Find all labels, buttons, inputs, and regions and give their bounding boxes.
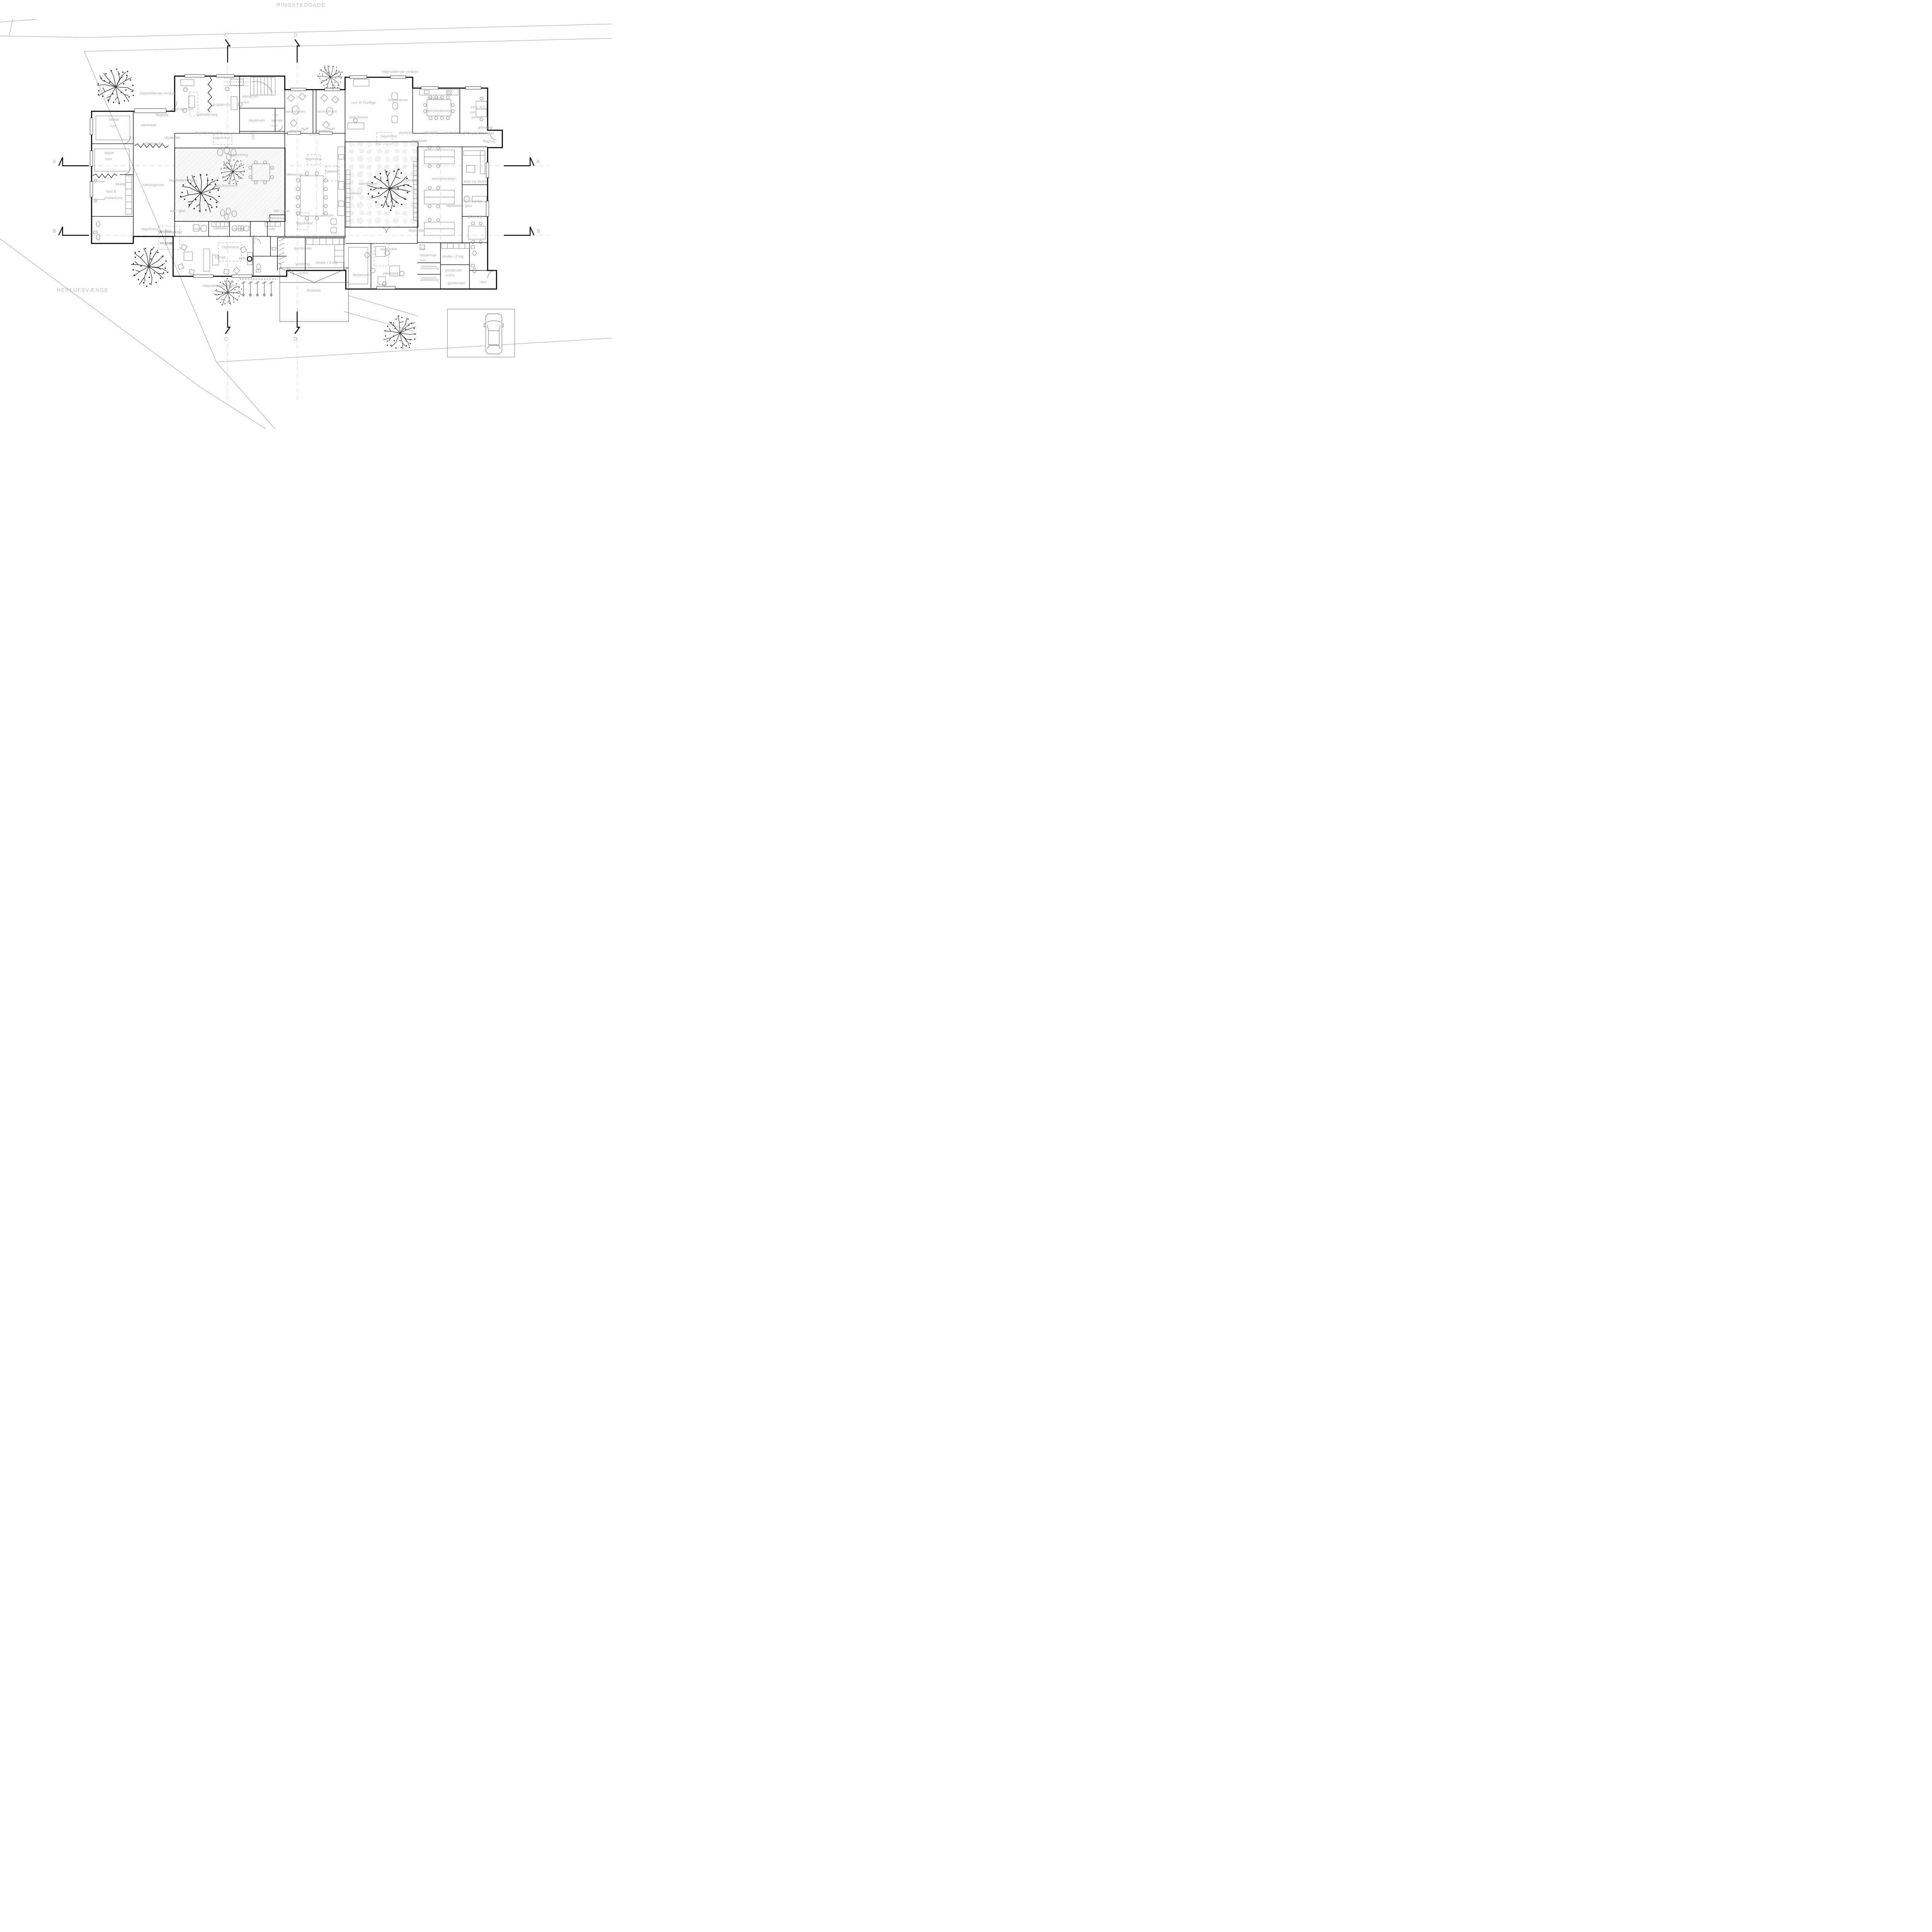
section-marker-flags bbox=[59, 39, 534, 334]
parking-area bbox=[447, 309, 515, 357]
forplads-canopy bbox=[280, 268, 349, 321]
interior-walls bbox=[92, 76, 497, 289]
plan-drawing bbox=[0, 0, 612, 429]
bike-racks bbox=[240, 279, 276, 297]
section-centerlines bbox=[62, 43, 549, 402]
car-icon bbox=[484, 314, 503, 354]
courtyard-sansehave bbox=[345, 142, 418, 227]
floor-plan-page: RINGSTEDGADE HERLUFSVÆNGE bbox=[0, 0, 612, 429]
